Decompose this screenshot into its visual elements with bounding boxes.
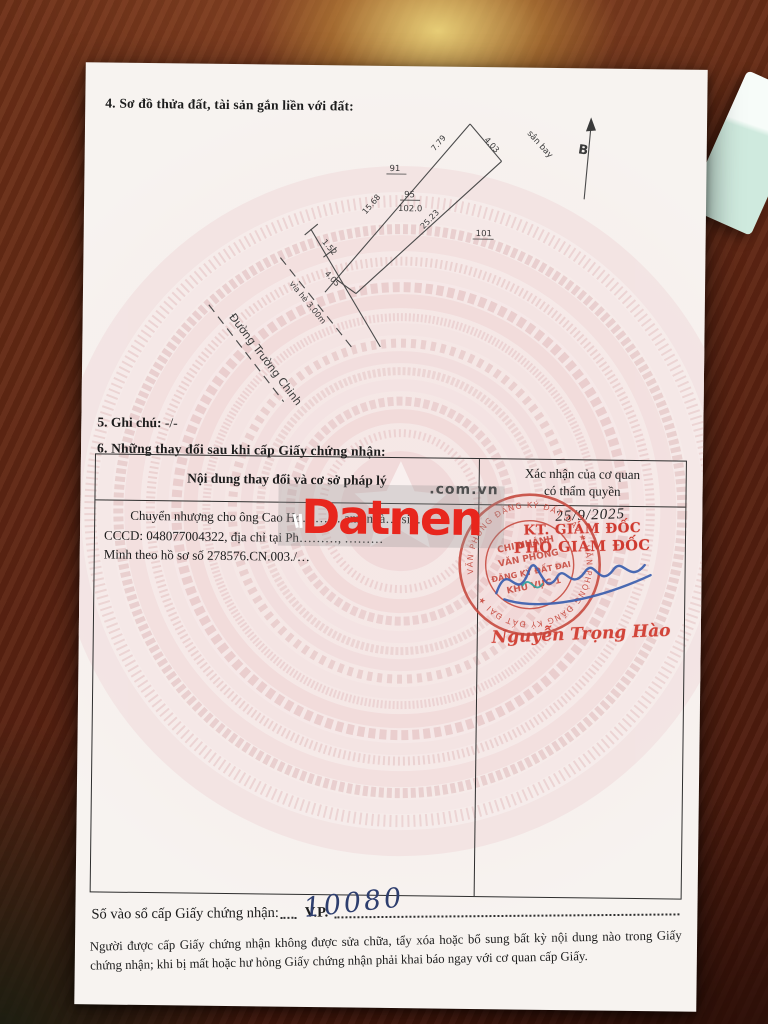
north-arrow-head: [586, 117, 596, 131]
section5-value: -/-: [165, 415, 178, 430]
entry-line3: Minh theo hồ sơ số 278576.CN.003./…: [104, 544, 469, 568]
datnen-watermark: Datnen .com.vn: [278, 484, 505, 549]
parcel-right-number: 101: [476, 229, 492, 239]
edge-front-jog-label: 1.52: [320, 238, 339, 257]
changes-table-body: Chuyển nhượng cho ông Cao Ho……… am, ngà……: [91, 500, 686, 898]
sidewalk-label: vỉa hè 3.00m: [288, 279, 329, 326]
adjacent-area-label: sân bay: [525, 129, 555, 160]
certificate-page: 4. Sơ đồ thửa đất, tài sản gắn liền với …: [74, 62, 707, 1012]
parcel-center-number: 95: [404, 190, 415, 200]
register-label: Số vào sổ cấp Giấy chứng nhận:: [91, 905, 279, 924]
plot-diagram: B sân bay 4.03 7.79 15.68 25.23 4.05 1.5…: [92, 103, 696, 412]
confirmation-cell: 25/9/2025 KT. GIÁM ĐỐC PHÓ GIÁM ĐỐC VĂN …: [474, 505, 685, 898]
edge-nw-lower-label: 15.68: [361, 193, 383, 216]
street-name-label: Đường Trường Chinh: [226, 311, 304, 408]
dotted-leader: [281, 916, 297, 919]
edge-front-label: 4.05: [323, 269, 342, 288]
change-entry-cell: Chuyển nhượng cho ông Cao Ho……… am, ngà……: [91, 500, 479, 896]
road-edge-dashed-1: [279, 258, 355, 351]
director-signature: [481, 533, 672, 625]
parcel-center-area: 102.0: [398, 204, 422, 214]
certificate-notice: Người được cấp Giấy chứng nhận không đượ…: [90, 926, 683, 976]
road-edge-dashed-2: [208, 305, 285, 402]
edge-top-right-label: 4.03: [482, 135, 501, 154]
section5-label: 5. Ghi chú:: [97, 414, 161, 430]
parcel-left-number: 91: [389, 164, 400, 174]
watermark-logo-mark: [292, 514, 306, 532]
watermark-suffix: .com.vn: [429, 481, 498, 498]
edge-nw-upper-label: 7.79: [429, 133, 447, 152]
section5-note: 5. Ghi chú: -/-: [97, 414, 177, 431]
north-label: B: [577, 142, 589, 158]
watermark-brand: Datnen: [301, 493, 482, 542]
